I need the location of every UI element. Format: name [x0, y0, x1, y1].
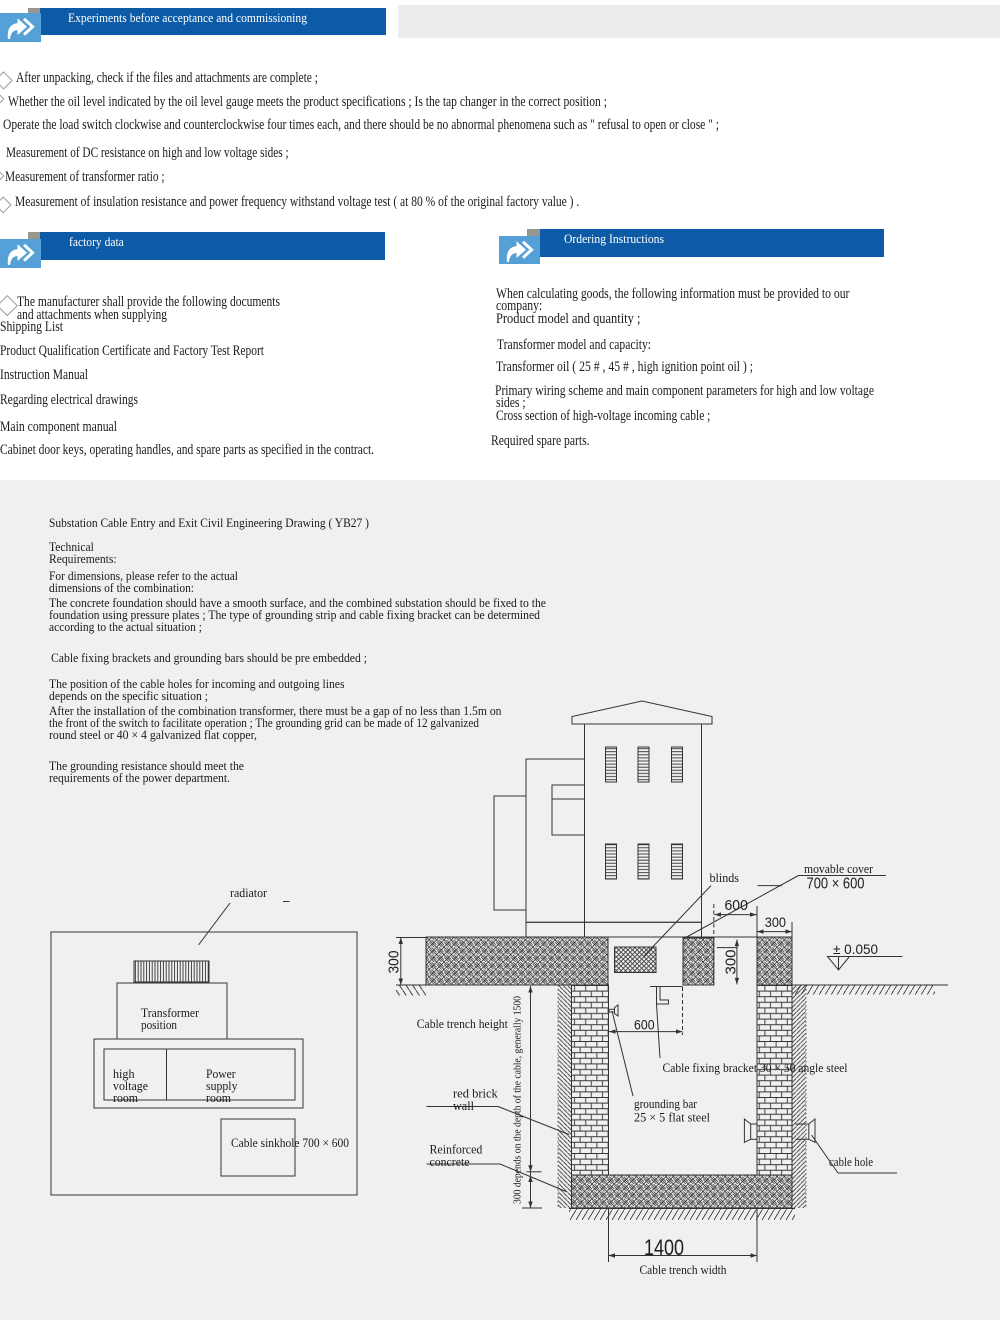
svg-text:radiator: radiator [230, 886, 268, 900]
svg-text:position: position [141, 1018, 177, 1032]
svg-text:Cable trench width: Cable trench width [640, 1263, 728, 1277]
svg-text:Cable fixing bracket 30 × 50 a: Cable fixing bracket 30 × 50 angle steel [663, 1061, 849, 1075]
svg-text:wall: wall [453, 1099, 475, 1113]
svg-text:25 × 5 flat steel: 25 × 5 flat steel [634, 1111, 711, 1125]
svg-text:blinds: blinds [710, 871, 740, 885]
svg-text:300: 300 [765, 915, 786, 930]
svg-text:room: room [113, 1091, 138, 1105]
svg-text:600: 600 [634, 1017, 655, 1033]
svg-text:cable hole: cable hole [829, 1155, 873, 1169]
svg-text:300: 300 [723, 950, 740, 975]
svg-text:1400: 1400 [644, 1235, 684, 1260]
svg-text:600: 600 [725, 897, 748, 914]
svg-text:700 × 600: 700 × 600 [807, 876, 865, 893]
svg-text:Cable trench height: Cable trench height [417, 1017, 509, 1031]
svg-text:room: room [206, 1091, 231, 1105]
svg-text:Cable sinkhole 700 × 600: Cable sinkhole 700 × 600 [231, 1136, 349, 1150]
svg-text:movable cover: movable cover [804, 862, 874, 876]
svg-text:300: 300 [387, 951, 403, 974]
svg-text:300 depends on the depth of th: 300 depends on the depth of the cable, g… [513, 996, 524, 1204]
svg-text:± 0.050: ± 0.050 [833, 941, 878, 957]
svg-text:concrete: concrete [430, 1155, 470, 1169]
svg-text:grounding bar: grounding bar [634, 1097, 698, 1111]
